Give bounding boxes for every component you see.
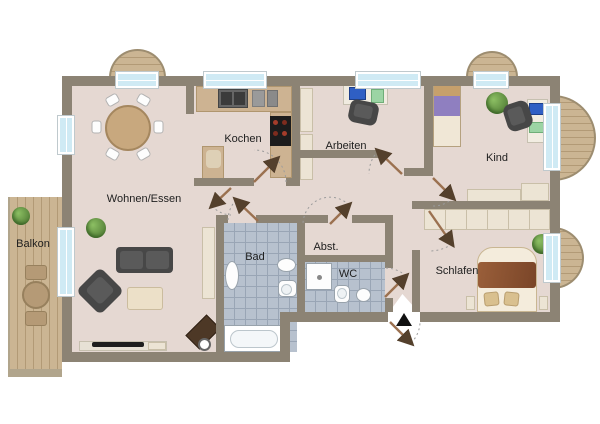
wall-segment xyxy=(292,86,300,186)
wall-segment xyxy=(297,215,305,312)
office-shelf xyxy=(300,88,313,132)
wall-segment xyxy=(385,215,393,268)
wall-segment xyxy=(256,215,328,223)
wall-segment xyxy=(412,201,550,209)
bathtub xyxy=(224,325,287,352)
window xyxy=(58,116,74,154)
bath-sink xyxy=(225,261,239,290)
window xyxy=(544,104,560,170)
sofa xyxy=(116,247,173,273)
balcony-door-window xyxy=(58,228,74,296)
balcony-edge xyxy=(8,369,62,377)
double-bed xyxy=(477,247,537,312)
tv xyxy=(92,342,144,347)
stove-hob xyxy=(270,116,291,146)
balcony-chair xyxy=(25,311,47,326)
window xyxy=(544,234,560,282)
wall-segment xyxy=(385,298,393,312)
room-label-abst: Abst. xyxy=(313,241,338,253)
balcony-chair xyxy=(25,265,47,280)
stove-pipe xyxy=(198,338,211,351)
wall-segment xyxy=(424,86,433,176)
dining-table xyxy=(105,105,151,151)
wall-segment xyxy=(305,255,385,262)
shower xyxy=(306,263,332,290)
room-label-balkon: Balkon xyxy=(16,238,50,250)
room-label-kind: Kind xyxy=(486,152,508,164)
wall-segment xyxy=(412,250,420,312)
wall-segment xyxy=(194,178,254,186)
door-swing-arc xyxy=(411,322,420,343)
wall-segment xyxy=(186,86,194,114)
plant xyxy=(12,207,30,225)
coffee-table xyxy=(127,287,163,310)
window xyxy=(204,72,266,88)
laptop xyxy=(529,103,544,115)
wardrobe-row xyxy=(424,209,550,230)
wall-segment xyxy=(216,215,224,352)
window xyxy=(356,72,420,88)
wall-segment xyxy=(62,352,290,362)
wc-sink xyxy=(356,288,371,302)
plant xyxy=(86,218,106,238)
floorplan-canvas: Balkon Wohnen/Essen Kochen Arbeiten Kind… xyxy=(0,0,600,424)
nightstand xyxy=(539,296,548,310)
room-label-bad: Bad xyxy=(245,251,265,263)
window xyxy=(116,72,158,88)
kitchen-drainer xyxy=(252,90,265,107)
kid-bed xyxy=(433,84,461,147)
kitchen-drainer xyxy=(267,90,278,107)
room-label-schlafen: Schlafen xyxy=(436,265,479,277)
dresser xyxy=(521,183,549,201)
kitchen-sink xyxy=(218,89,248,108)
nightstand xyxy=(466,296,475,310)
media-boxes xyxy=(148,342,166,350)
room-label-arbeiten: Arbeiten xyxy=(326,140,367,152)
wall-segment xyxy=(280,312,388,322)
room-label-kochen: Kochen xyxy=(224,133,261,145)
dining-chair xyxy=(154,121,164,134)
dining-chair xyxy=(92,121,102,134)
toilet xyxy=(278,280,297,297)
toilet xyxy=(334,285,350,303)
bath-sink-small xyxy=(277,258,296,272)
notepad xyxy=(371,89,384,103)
window xyxy=(474,72,508,88)
room-label-wc: WC xyxy=(339,268,357,280)
laptop xyxy=(349,87,366,100)
balcony-table xyxy=(22,281,50,309)
tall-cabinet xyxy=(202,227,215,299)
fridge xyxy=(202,146,224,180)
entrance-arrow xyxy=(396,313,412,326)
room-label-wohnen: Wohnen/Essen xyxy=(107,193,181,205)
wall-segment xyxy=(420,312,560,322)
